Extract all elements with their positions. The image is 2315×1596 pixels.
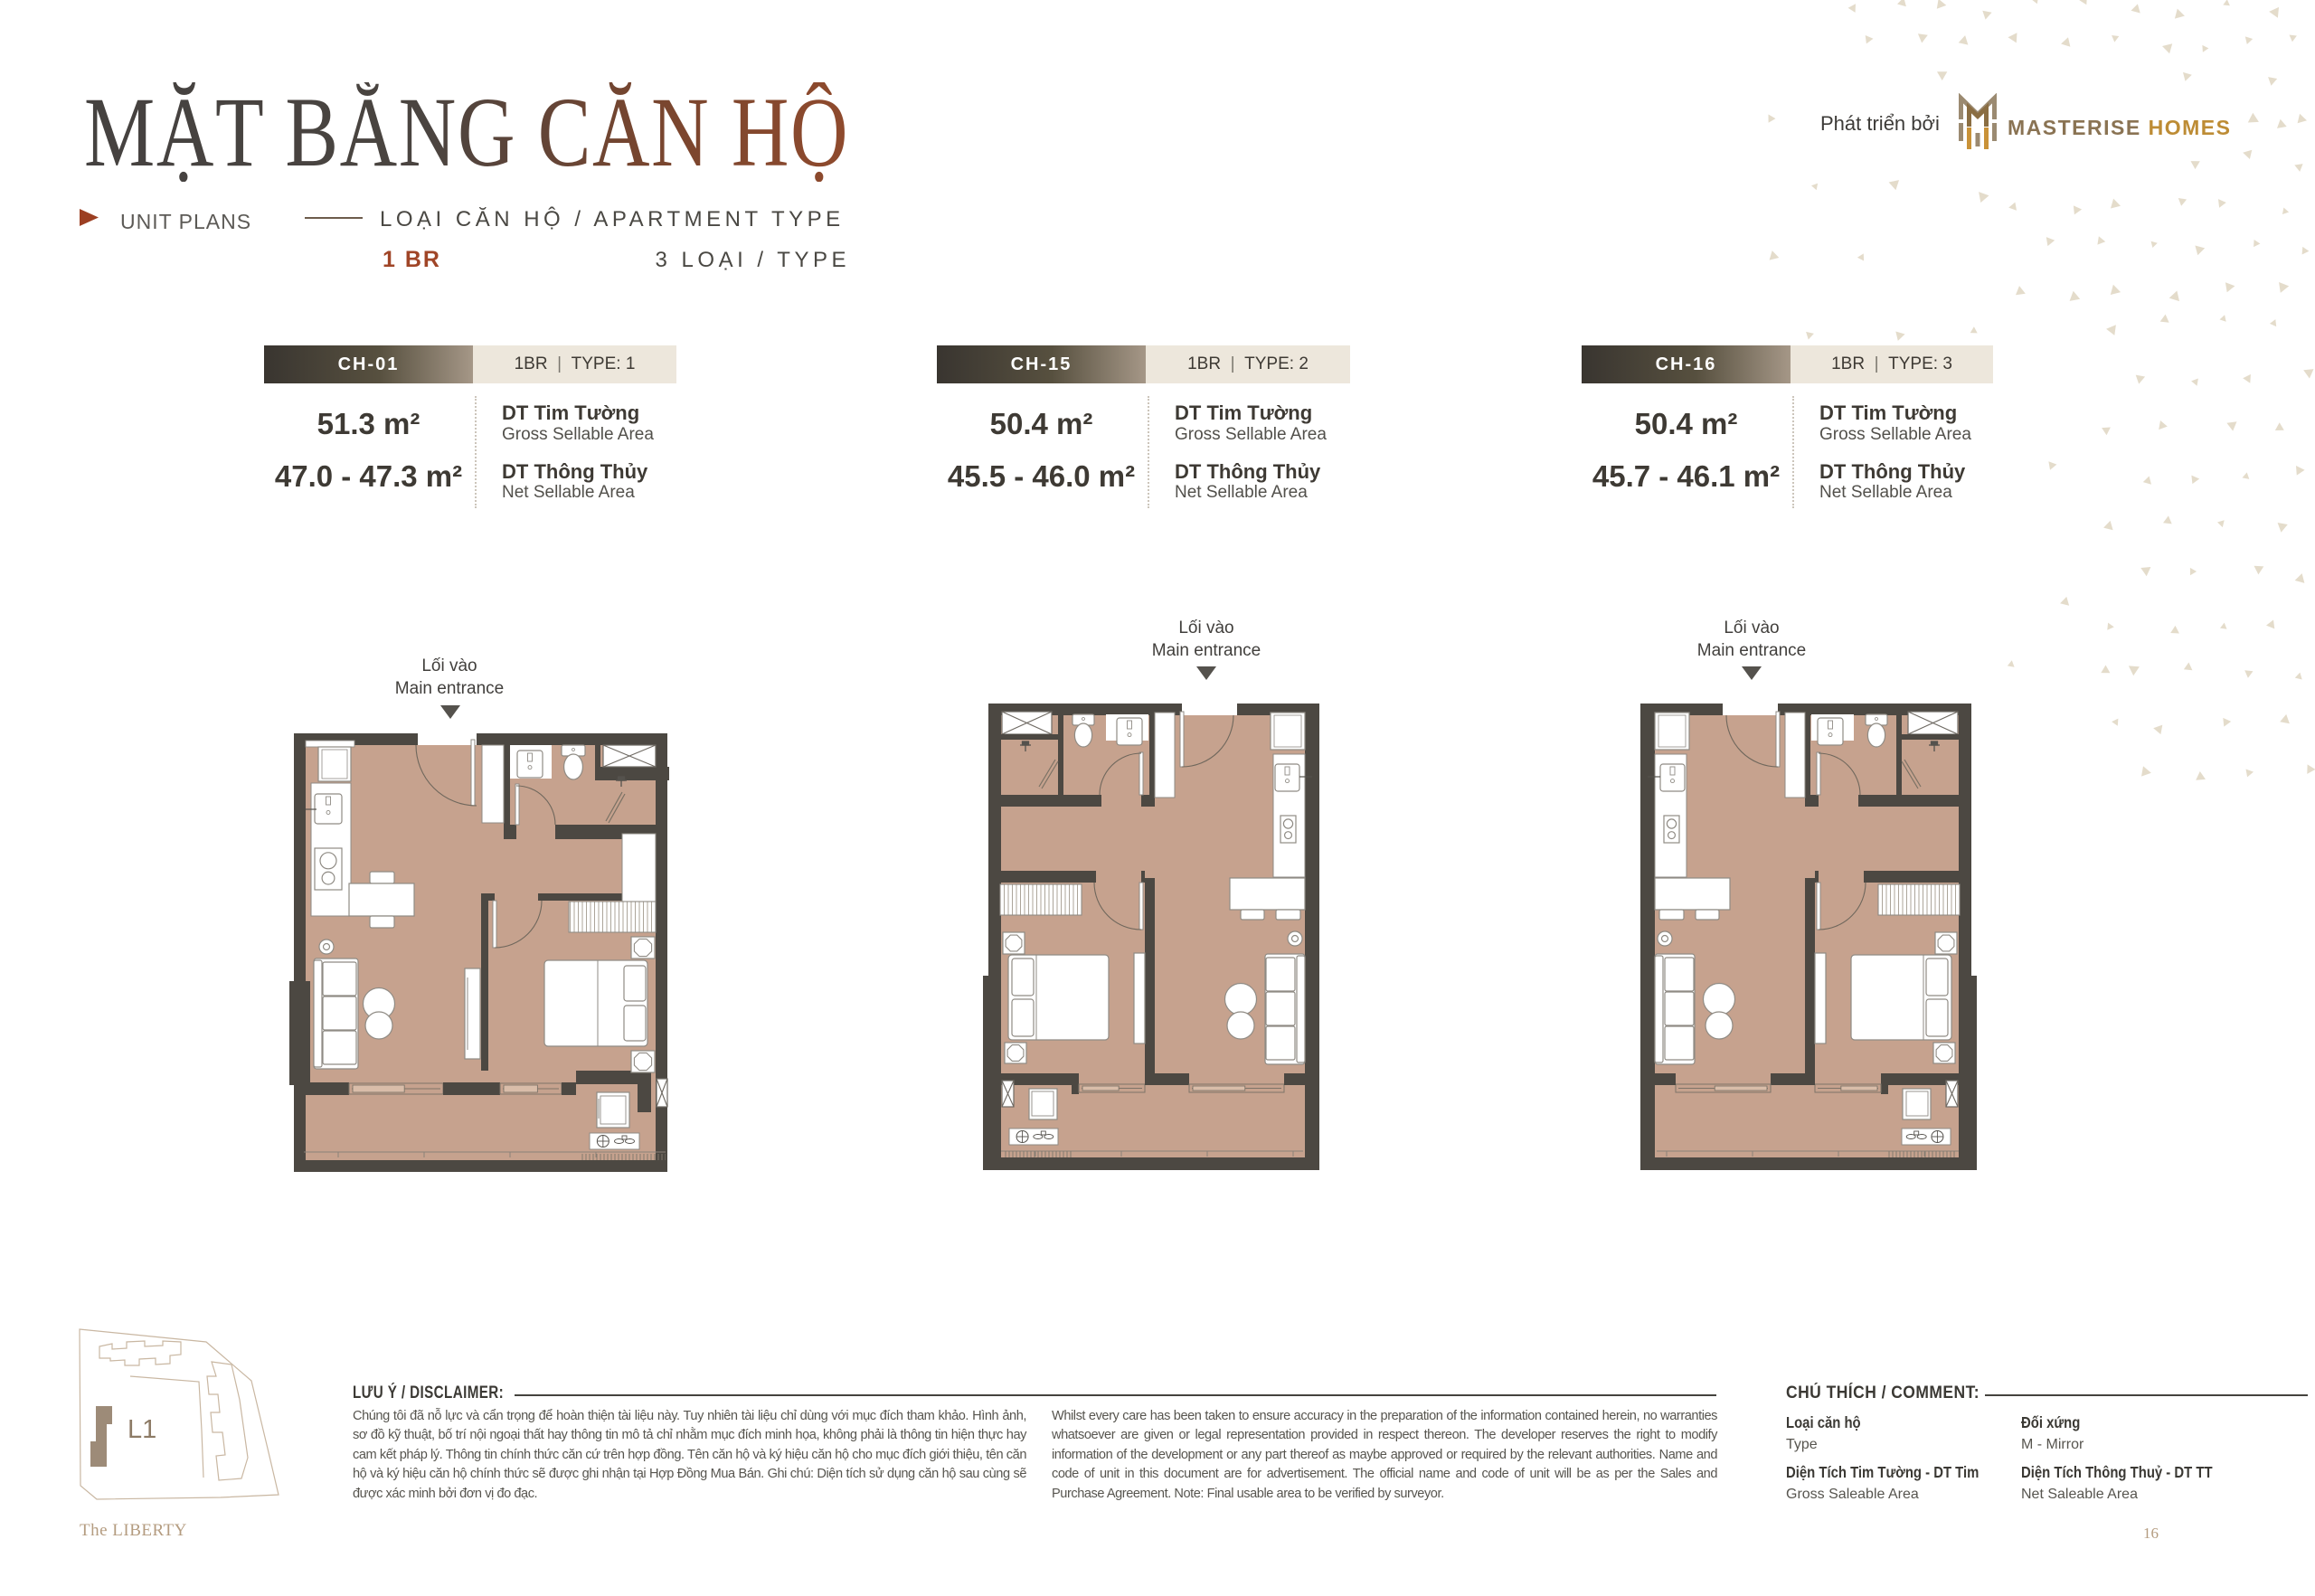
svg-text:L1: L1 <box>128 1415 156 1444</box>
